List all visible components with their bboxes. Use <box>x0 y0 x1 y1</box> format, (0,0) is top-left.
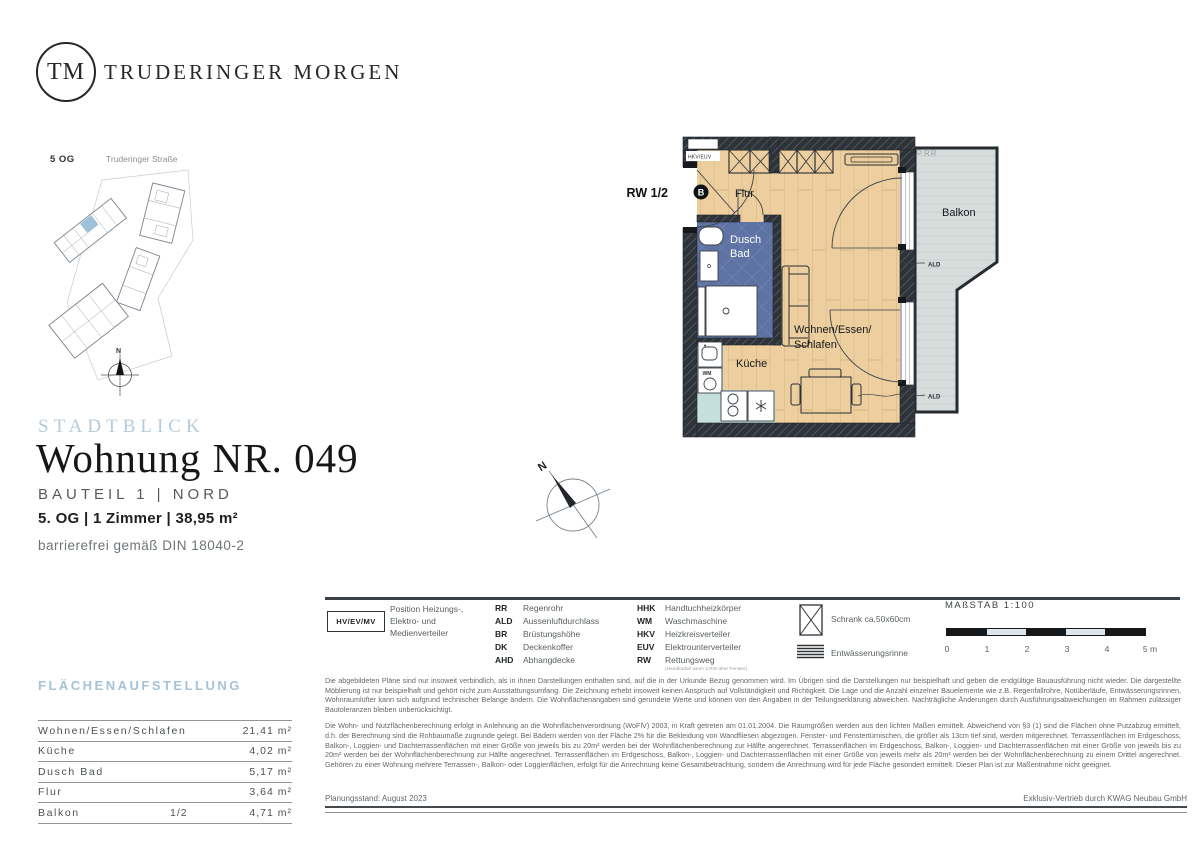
legend-abbr: EUV <box>637 641 665 654</box>
legend-term: Elektrounterverteiler <box>665 641 741 654</box>
room-label-dusch: Dusch <box>730 234 761 246</box>
disclaimer-section: Die abgebildeten Pläne sind nur insoweit… <box>325 676 1181 769</box>
legend-abbr: HHK <box>637 602 665 615</box>
table-row: Küche 4,02 m² <box>38 741 292 762</box>
table-row: Balkon 1/2 4,71 m² <box>38 802 292 824</box>
sink <box>700 251 718 281</box>
balcony-area <box>915 148 997 412</box>
entwaesserungsrinne-symbol-icon <box>797 644 824 659</box>
legend-term: Deckenkoffer <box>523 641 573 654</box>
plan-compass-icon: N <box>520 450 630 560</box>
room-label-balkon: Balkon <box>942 207 976 219</box>
room-name: Dusch Bad <box>38 766 170 778</box>
brand-logo: TM <box>36 42 96 102</box>
legend-term: Waschmaschine <box>665 615 727 628</box>
legend-abbr: AHD <box>495 654 523 667</box>
legend-term: Abhangdecke <box>523 654 575 667</box>
washing-machine-label: WM <box>703 371 712 377</box>
scale-tick: 0 <box>945 644 950 654</box>
legend-term: Handtuchheizkörper <box>665 602 741 615</box>
scale-tick: 1 <box>985 644 990 654</box>
area-table-heading: FLÄCHENAUFSTELLUNG <box>38 678 292 693</box>
room-area: 4,02 m² <box>222 745 292 757</box>
legend-abbr: BR <box>495 628 523 641</box>
accessibility-note: barrierefrei gemäß DIN 18040-2 <box>38 538 244 553</box>
room-name: Küche <box>38 745 170 757</box>
ald-label-upper: ALD <box>928 263 941 269</box>
room-share: 1/2 <box>170 807 222 819</box>
legend-abbr: RW <box>637 654 665 667</box>
table-row: Wohnen/Essen/Schlafen 21,41 m² <box>38 720 292 741</box>
entrance-marker-label: B <box>698 188 705 198</box>
shower-bench <box>698 287 705 336</box>
site-plan-street-label: Truderinger Straße <box>106 154 178 164</box>
site-compass-north-label: N <box>116 348 121 355</box>
scale-tick: 5 m <box>1143 644 1157 654</box>
floorplan-page: TM TRUDERINGER MORGEN 5 OG Truderinger S… <box>0 0 1200 849</box>
floor-plan: HKV/EUV WM <box>610 118 1020 458</box>
site-plan: 5 OG Truderinger Straße <box>40 148 225 403</box>
plan-compass-north-label: N <box>536 460 549 474</box>
hkv-label: HKV/EUV <box>688 155 712 161</box>
hkv-shaft <box>688 139 718 149</box>
legend-term: Heizkreisverteiler <box>665 628 730 641</box>
page-title: Wohnung NR. 049 <box>36 434 359 482</box>
room-label-bad: Bad <box>730 248 750 260</box>
legend-column-1: RRRegenrohr ALDAussenluftdurchlass BRBrü… <box>495 602 599 667</box>
brand-name: TRUDERINGER MORGEN <box>104 60 402 85</box>
legend-column-2: HHKHandtuchheizkörper WMWaschmaschine HK… <box>637 602 747 673</box>
legend-abbr: ALD <box>495 615 523 628</box>
scale-bar <box>946 628 1146 636</box>
area-table: Wohnen/Essen/Schlafen 21,41 m² Küche 4,0… <box>38 720 292 824</box>
room-area: 21,41 m² <box>222 725 292 737</box>
legend-abbr: HKV <box>637 628 665 641</box>
room-label-flur: Flur <box>735 188 754 200</box>
disclaimer-paragraph-1: Die abgebildeten Pläne sind nur insoweit… <box>325 676 1181 714</box>
room-label-kueche: Küche <box>736 358 767 370</box>
apartment-specs: 5. OG | 1 Zimmer | 38,95 m² <box>38 510 238 527</box>
legend-term: Brüstungshöhe <box>523 628 580 641</box>
room-name: Wohnen/Essen/Schlafen <box>38 725 170 737</box>
legend-abbr: DK <box>495 641 523 654</box>
entwaesserungsrinne-symbol-label: Entwässerungsrinne <box>831 648 908 658</box>
rr-label: RR <box>924 149 938 158</box>
brand-logo-initials: TM <box>47 59 85 86</box>
hv-ev-mv-box: HV/EV/MV <box>327 611 385 632</box>
table-row: Flur 3,64 m² <box>38 782 292 803</box>
room-label-wohnen-2: Schlafen <box>794 339 837 351</box>
scale-label: MAßSTAB 1:100 <box>945 600 1035 611</box>
scale-tick: 4 <box>1105 644 1110 654</box>
schrank-symbol-icon <box>799 604 823 636</box>
legend-abbr: RR <box>495 602 523 615</box>
legend-term: Aussenluftdurchlass <box>523 615 599 628</box>
escape-route-label: RW 1/2 <box>627 186 668 200</box>
scale-tick: 2 <box>1025 644 1030 654</box>
site-plan-building-1 <box>54 198 126 262</box>
legend-term: Regenrohr <box>523 602 563 615</box>
scale-tick: 3 <box>1065 644 1070 654</box>
room-area: 4,71 m² <box>222 807 292 819</box>
toilet <box>699 227 723 245</box>
legend-divider <box>325 597 1180 600</box>
shower <box>706 286 757 336</box>
room-name: Flur <box>38 786 170 798</box>
site-plan-floor-label: 5 OG <box>50 154 75 165</box>
room-area: 5,17 m² <box>222 766 292 778</box>
schrank-symbol-label: Schrank ca.50x60cm <box>831 614 910 624</box>
site-plan-building-2 <box>140 183 185 243</box>
sales-credit: Exklusiv-Vertrieb durch KWAG Neubau GmbH <box>325 794 1187 803</box>
ald-label-lower: ALD <box>928 395 941 401</box>
room-area: 3,64 m² <box>222 786 292 798</box>
table-row: Dusch Bad 5,17 m² <box>38 761 292 782</box>
footer-divider <box>325 806 1187 813</box>
site-plan-building-3 <box>116 248 159 311</box>
hv-ev-mv-description: Position Heizungs-, Elektro- und Medienv… <box>390 604 490 640</box>
disclaimer-paragraph-2: Die Wohn- und Nutzflächenberechnung erfo… <box>325 721 1181 769</box>
site-compass-icon: N <box>101 348 139 396</box>
room-label-wohnen-1: Wohnen/Essen/ <box>794 324 872 336</box>
legend-abbr: WM <box>637 615 665 628</box>
building-part-label: BAUTEIL 1 | NORD <box>38 486 233 503</box>
legend-term: Rettungsweg <box>665 654 715 667</box>
rw-note: (Handkurbel wenn 2.RW über Fenster) <box>665 667 747 673</box>
area-table-section: FLÄCHENAUFSTELLUNG Wohnen/Essen/Schlafen… <box>38 678 292 824</box>
room-name: Balkon <box>38 807 170 819</box>
